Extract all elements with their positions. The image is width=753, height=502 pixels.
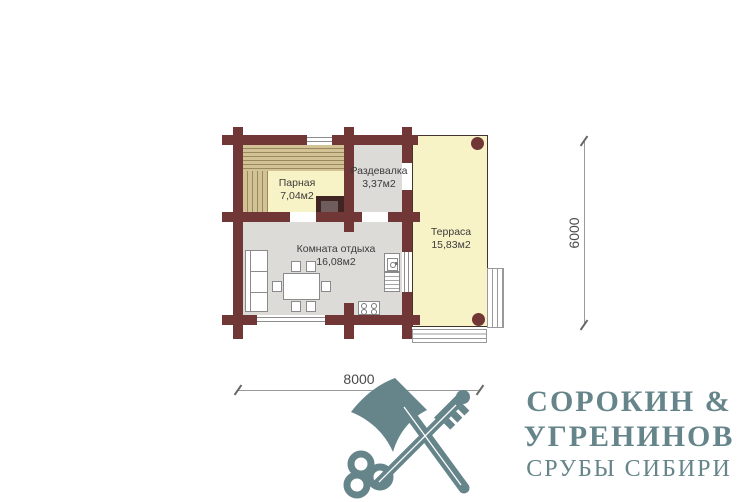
dimension-line-vertical <box>584 141 585 325</box>
room-name: Раздевалка <box>350 165 407 178</box>
label-parnaya: Парная 7,04м2 <box>279 177 316 202</box>
dimension-height: 6000 <box>566 210 582 256</box>
window-right <box>402 252 412 292</box>
room-name: Терраса <box>431 226 471 239</box>
terrace-post-bottom <box>472 313 485 326</box>
sauna-bench-top <box>243 145 344 171</box>
floor-plan-page: Парная 7,04м2 Раздевалка 3,37м2 Комната … <box>0 0 753 502</box>
sofa-seat <box>250 250 268 272</box>
window-top <box>307 135 332 145</box>
door-razdevalka-komnata <box>362 212 388 222</box>
wall-middle <box>222 212 420 222</box>
logo-title-line1: СОРОКИН & <box>505 384 753 419</box>
logo-axe-and-key-icon <box>333 376 525 502</box>
logo-title-line2: УГРЕНИНОВ <box>505 419 753 454</box>
wall-right <box>402 127 412 339</box>
label-razdevalka: Раздевалка 3,37м2 <box>350 165 407 190</box>
sink-unit <box>384 253 400 272</box>
room-name: Комната отдыха <box>297 243 376 256</box>
terrace-post-top <box>471 137 484 150</box>
sofa-seat <box>250 271 268 293</box>
room-area: 3,37м2 <box>350 178 407 191</box>
chair <box>272 281 282 292</box>
door-parnaya-komnata <box>290 212 316 222</box>
cooktop <box>358 301 380 315</box>
label-komnata: Комната отдыха 16,08м2 <box>297 243 376 268</box>
window-bottom <box>257 315 325 325</box>
chair <box>321 281 331 292</box>
terrace-steps-right <box>487 268 504 328</box>
chair <box>291 301 301 312</box>
logo-text-block: СОРОКИН & УГРЕНИНОВ СРУБЫ СИБИРИ <box>505 384 753 484</box>
room-name: Парная <box>279 177 316 190</box>
wall-left <box>233 127 243 339</box>
chair <box>306 301 316 312</box>
burner-icon <box>371 309 377 315</box>
sauna-stove-core <box>321 201 338 212</box>
sofa <box>245 250 268 312</box>
label-terrasa: Терраса 15,83м2 <box>431 226 471 251</box>
logo-subtitle: СРУБЫ СИБИРИ <box>505 454 753 484</box>
wall-center-lower <box>344 303 354 339</box>
dining-table <box>283 273 320 300</box>
room-area: 7,04м2 <box>279 190 316 203</box>
terrace-steps-bottom <box>412 329 487 343</box>
kitchen-counter <box>384 272 400 292</box>
room-area: 15,83м2 <box>431 239 471 252</box>
sauna-bench-left <box>243 171 268 212</box>
room-area: 16,08м2 <box>297 256 376 269</box>
burner-icon <box>361 309 367 315</box>
sink-tap-icon <box>395 262 398 265</box>
sofa-seat <box>250 292 268 312</box>
dim-tick <box>580 320 589 331</box>
